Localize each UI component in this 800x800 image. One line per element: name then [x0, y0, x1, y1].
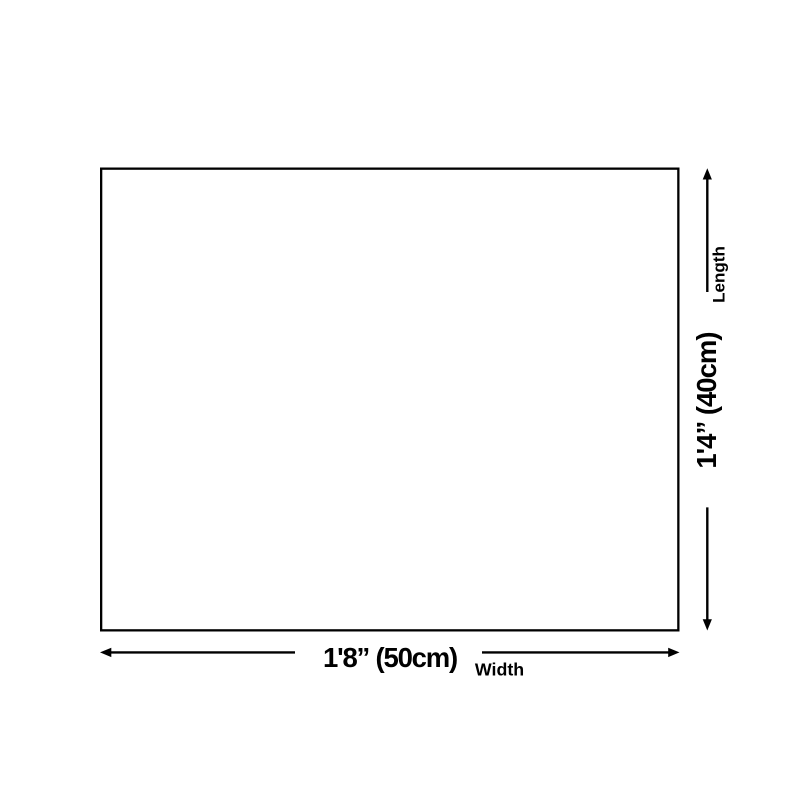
svg-text:1'8” (50cm): 1'8” (50cm) — [323, 642, 457, 673]
svg-text:Length: Length — [710, 246, 729, 303]
svg-text:1'4” (40cm): 1'4” (40cm) — [691, 333, 722, 469]
svg-text:Width: Width — [475, 660, 524, 680]
